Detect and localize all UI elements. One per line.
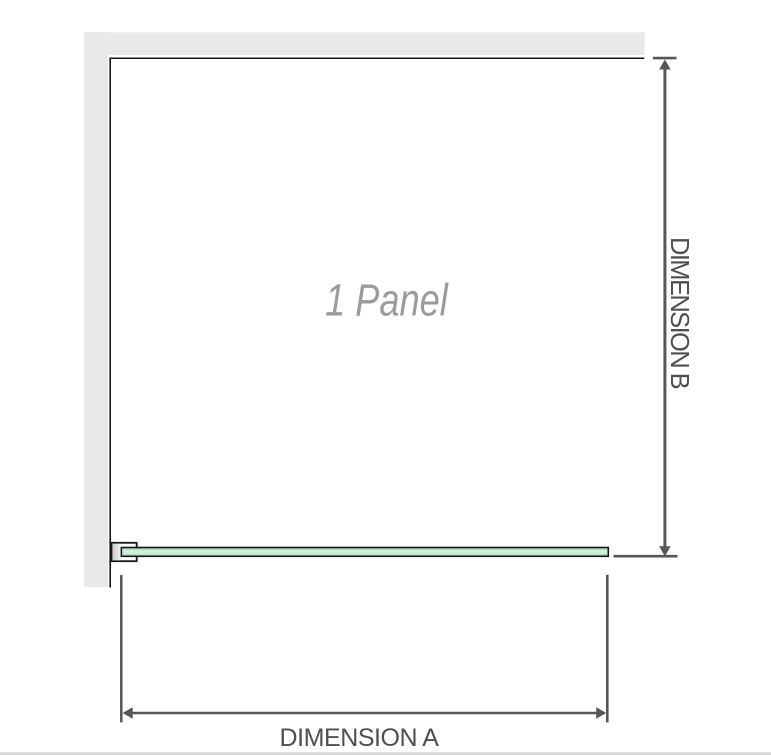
svg-text:DIMENSION A: DIMENSION A <box>280 724 440 752</box>
svg-text:DIMENSION B: DIMENSION B <box>665 237 693 389</box>
svg-text:1 Panel: 1 Panel <box>325 275 449 326</box>
